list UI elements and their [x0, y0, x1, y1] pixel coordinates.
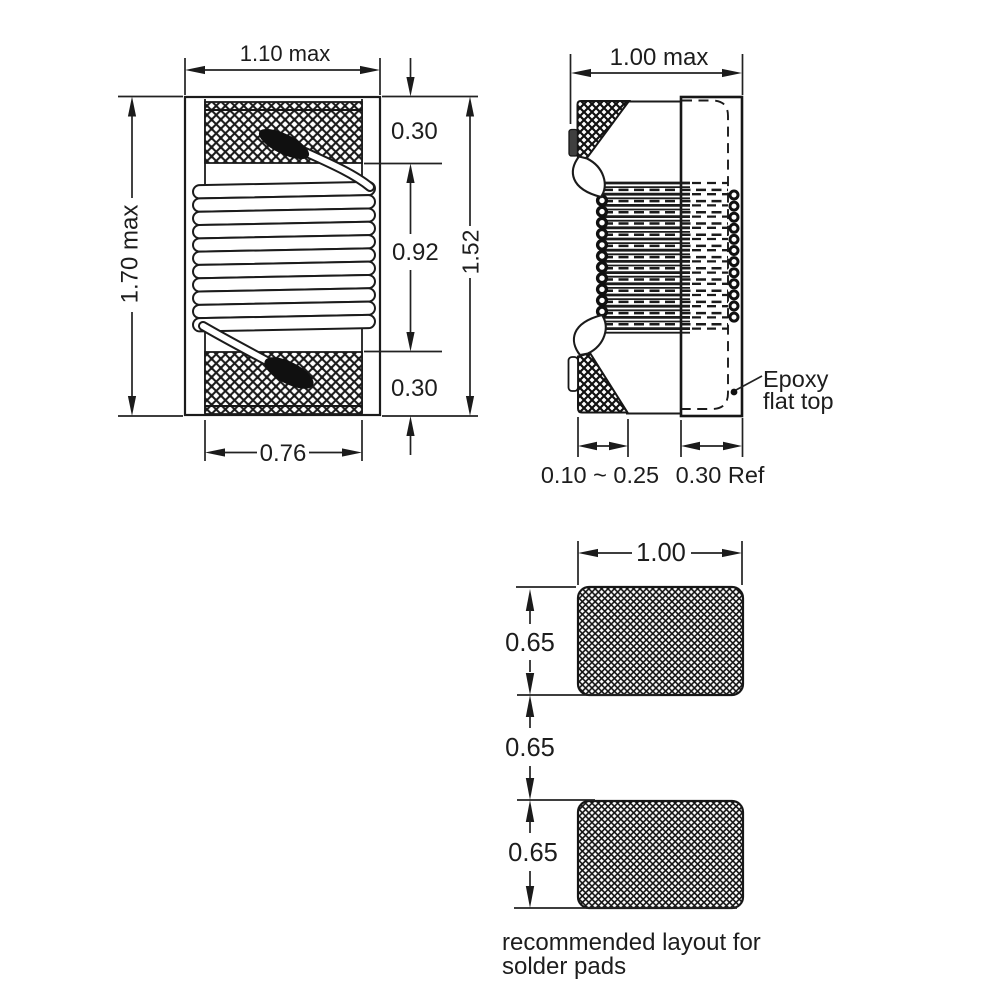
svg-text:recommended layout for: recommended layout for — [502, 929, 761, 956]
svg-text:solder pads: solder pads — [502, 953, 626, 980]
svg-text:1.00 max: 1.00 max — [610, 44, 709, 71]
svg-text:1.10 max: 1.10 max — [240, 41, 331, 66]
svg-text:0.92: 0.92 — [392, 239, 439, 266]
svg-text:0.30: 0.30 — [391, 375, 438, 402]
svg-text:1.70 max: 1.70 max — [117, 205, 144, 304]
svg-text:0.65: 0.65 — [505, 734, 555, 762]
svg-text:0.30: 0.30 — [391, 118, 438, 145]
svg-text:1.00: 1.00 — [636, 539, 686, 567]
svg-text:0.65: 0.65 — [505, 629, 555, 657]
svg-text:0.10 ~ 0.25: 0.10 ~ 0.25 — [541, 462, 659, 488]
svg-text:0.65: 0.65 — [508, 839, 558, 867]
svg-text:flat top: flat top — [763, 388, 834, 414]
svg-text:0.76: 0.76 — [260, 440, 307, 467]
svg-text:1.52: 1.52 — [458, 230, 484, 275]
svg-text:0.30 Ref: 0.30 Ref — [676, 462, 765, 488]
